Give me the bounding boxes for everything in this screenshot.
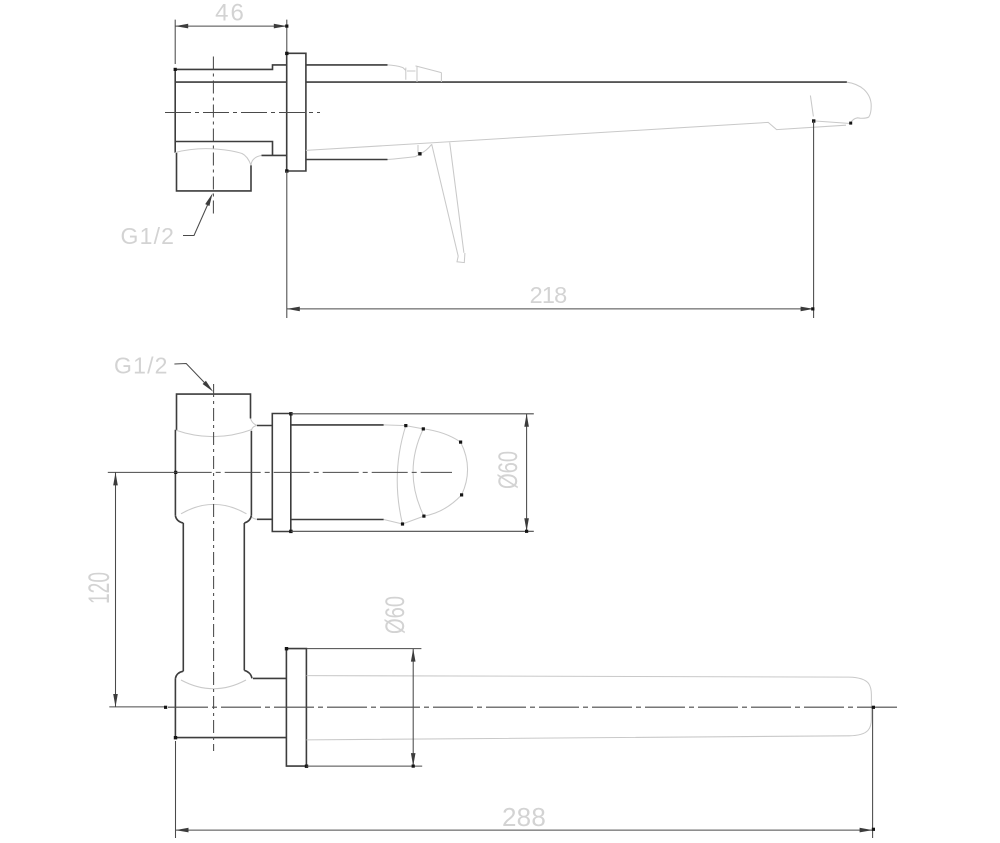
svg-text:Ø60: Ø60 — [493, 451, 522, 489]
svg-text:288: 288 — [502, 802, 546, 832]
svg-text:120: 120 — [83, 572, 116, 604]
svg-text:G1/2: G1/2 — [121, 223, 176, 249]
svg-text:G1/2: G1/2 — [114, 353, 169, 379]
svg-text:218: 218 — [530, 282, 568, 308]
svg-text:46: 46 — [215, 0, 246, 27]
svg-text:Ø60: Ø60 — [380, 596, 409, 634]
